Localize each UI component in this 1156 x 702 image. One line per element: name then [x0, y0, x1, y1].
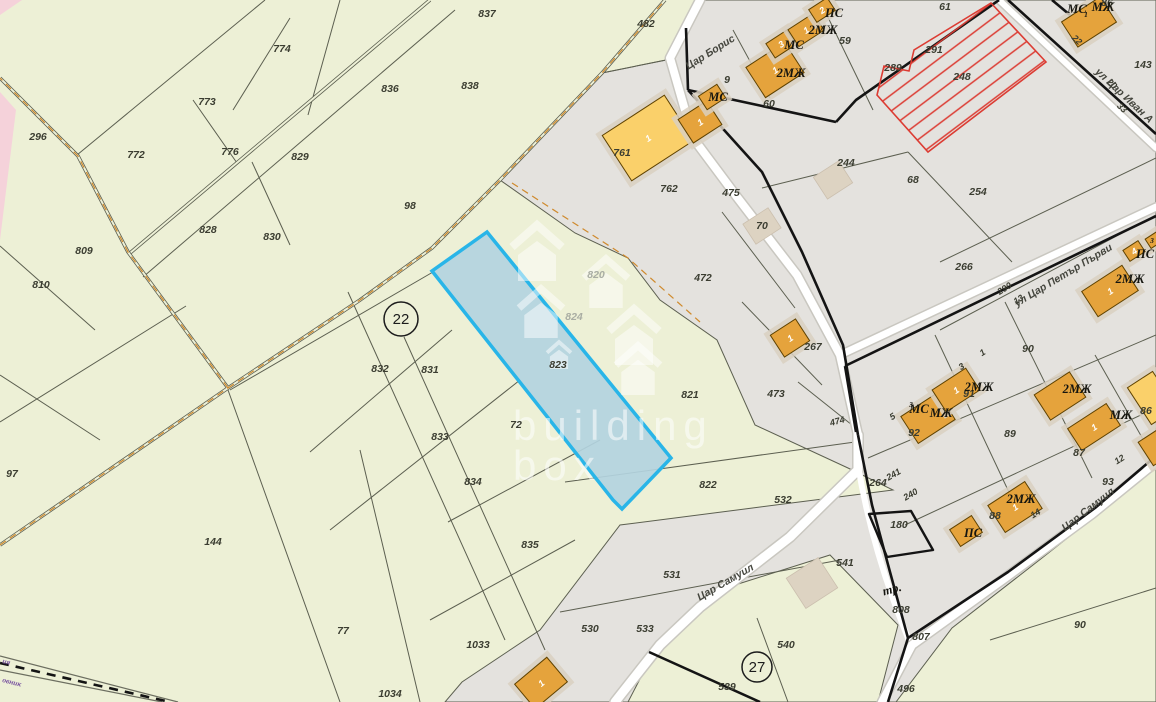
parcel-number-label: 475 [721, 187, 740, 199]
parcel-number-label: 772 [127, 149, 145, 161]
parcel-number-label: 773 [198, 96, 216, 108]
parcel-number-label: 86 [1140, 405, 1152, 417]
parcel-number-label: 291 [924, 44, 943, 56]
building-sub-label: 3 [1149, 236, 1154, 245]
building-type-label: ПС [824, 6, 844, 20]
map-viewport[interactable]: 1113121111141 building box 8377747738368… [0, 0, 1156, 702]
parcel-number-label: 828 [199, 224, 217, 236]
parcel-number-label: 144 [204, 536, 222, 548]
parcel-number-label: 482 [636, 18, 655, 30]
parcel-number-label: 834 [464, 476, 482, 488]
parcel-number-label: 70 [756, 220, 768, 232]
parcel-number-label: 836 [381, 83, 399, 95]
parcel-number-label: 60 [763, 98, 775, 110]
building-type-label: МС [783, 38, 804, 52]
building-type-label: 2МЖ [1062, 382, 1092, 396]
parcel-number-label: 68 [907, 174, 919, 186]
parcel-number-label: 832 [371, 363, 389, 375]
parcel-number-label: 254 [968, 186, 987, 198]
parcel-number-label: 473 [766, 388, 785, 400]
parcel-number-label: 264 [868, 477, 887, 489]
parcel-number-label: 98 [404, 200, 416, 212]
building-sub-label: 3 [908, 400, 913, 409]
parcel-number-label: 90 [1074, 619, 1086, 631]
parcel-number-label: 59 [839, 35, 851, 47]
parcel-number-label: 541 [836, 557, 854, 569]
parcel-number-label: 822 [699, 479, 717, 491]
parcel-number-label: 533 [636, 623, 654, 635]
parcel-number-label: 539 [718, 681, 736, 693]
parcel-number-label: 830 [263, 231, 281, 243]
building-type-label: ПС [1135, 247, 1155, 261]
parcel-number-label-faded: 824 [565, 311, 583, 323]
parcel-number-label: 540 [777, 639, 795, 651]
parcel-number-label: 835 [521, 539, 539, 551]
cadastral-map[interactable]: 1113121111141 building box 8377747738368… [0, 0, 1156, 702]
parcel-number-label: 143 [1134, 59, 1152, 71]
building-type-label: МС [707, 90, 728, 104]
parcel-number-label: 838 [461, 80, 479, 92]
parcel-number-label: 289 [883, 62, 902, 74]
parcel-number-label: 89 [1004, 428, 1016, 440]
parcel-number-label: 87 [1073, 447, 1086, 459]
parcel-number-label-faded: 820 [587, 269, 605, 281]
parcel-number-label: 496 [896, 683, 915, 695]
parcel-number-label: 774 [273, 43, 291, 55]
parcel-number-label: 266 [954, 261, 973, 273]
parcel-number-label: 1034 [378, 688, 402, 700]
building-type-label: МЖ [929, 406, 953, 420]
parcel-number-label: 837 [478, 8, 497, 20]
parcel-number-label: 9 [724, 74, 730, 86]
parcel-number-label: 761 [613, 147, 631, 159]
zone-number: 27 [749, 659, 766, 676]
parcel-number-label: 823 [549, 359, 567, 371]
building-type-label: 2МЖ [776, 66, 806, 80]
building-type-label: 2МЖ [1115, 272, 1145, 286]
parcel-number-label: 776 [221, 146, 239, 158]
parcel-number-label: 248 [952, 71, 971, 83]
parcel-number-label: 267 [803, 341, 823, 353]
parcel-number-label: 77 [337, 625, 350, 637]
building-type-label: 2МЖ [808, 23, 838, 37]
building-type-label: ПС [963, 526, 983, 540]
parcel-number-label: 531 [663, 569, 681, 581]
parcel-number-label: 530 [581, 623, 599, 635]
building-type-label: МЖ [1109, 408, 1133, 422]
parcel-number-label: 809 [75, 245, 93, 257]
parcel-number-label: 807 [912, 631, 931, 643]
parcel-number-label: 97 [6, 468, 19, 480]
parcel-number-label: 762 [660, 183, 678, 195]
building-type-label: 2МЖ [1006, 492, 1036, 506]
building-sub-label: 1 [1084, 10, 1088, 19]
parcel-number-label: 244 [836, 157, 855, 169]
parcel-number-label: 821 [681, 389, 699, 401]
building-type-label: МЖ [1091, 0, 1115, 14]
parcel-number-label: 532 [774, 494, 792, 506]
watermark-text-line2: box [513, 442, 602, 489]
building-type-label: 2МЖ [964, 380, 994, 394]
parcel-number-label: 808 [892, 604, 910, 616]
zone-number: 22 [393, 311, 410, 328]
parcel-number-label: 810 [32, 279, 50, 291]
parcel-number-label: 296 [28, 131, 47, 143]
parcel-number-label: 90 [1022, 343, 1034, 355]
parcel-number-label: 829 [291, 151, 309, 163]
parcel-number-label: 1033 [466, 639, 490, 651]
parcel-number-label: 180 [890, 519, 908, 531]
parcel-number-label: 833 [431, 431, 449, 443]
parcel-number-label: 88 [989, 510, 1001, 522]
parcel-number-label: 92 [908, 427, 920, 439]
parcel-number-label: 831 [421, 364, 439, 376]
parcel-number-label: 472 [693, 272, 712, 284]
parcel-number-label: 72 [510, 419, 522, 431]
parcel-number-label: 61 [939, 1, 951, 13]
